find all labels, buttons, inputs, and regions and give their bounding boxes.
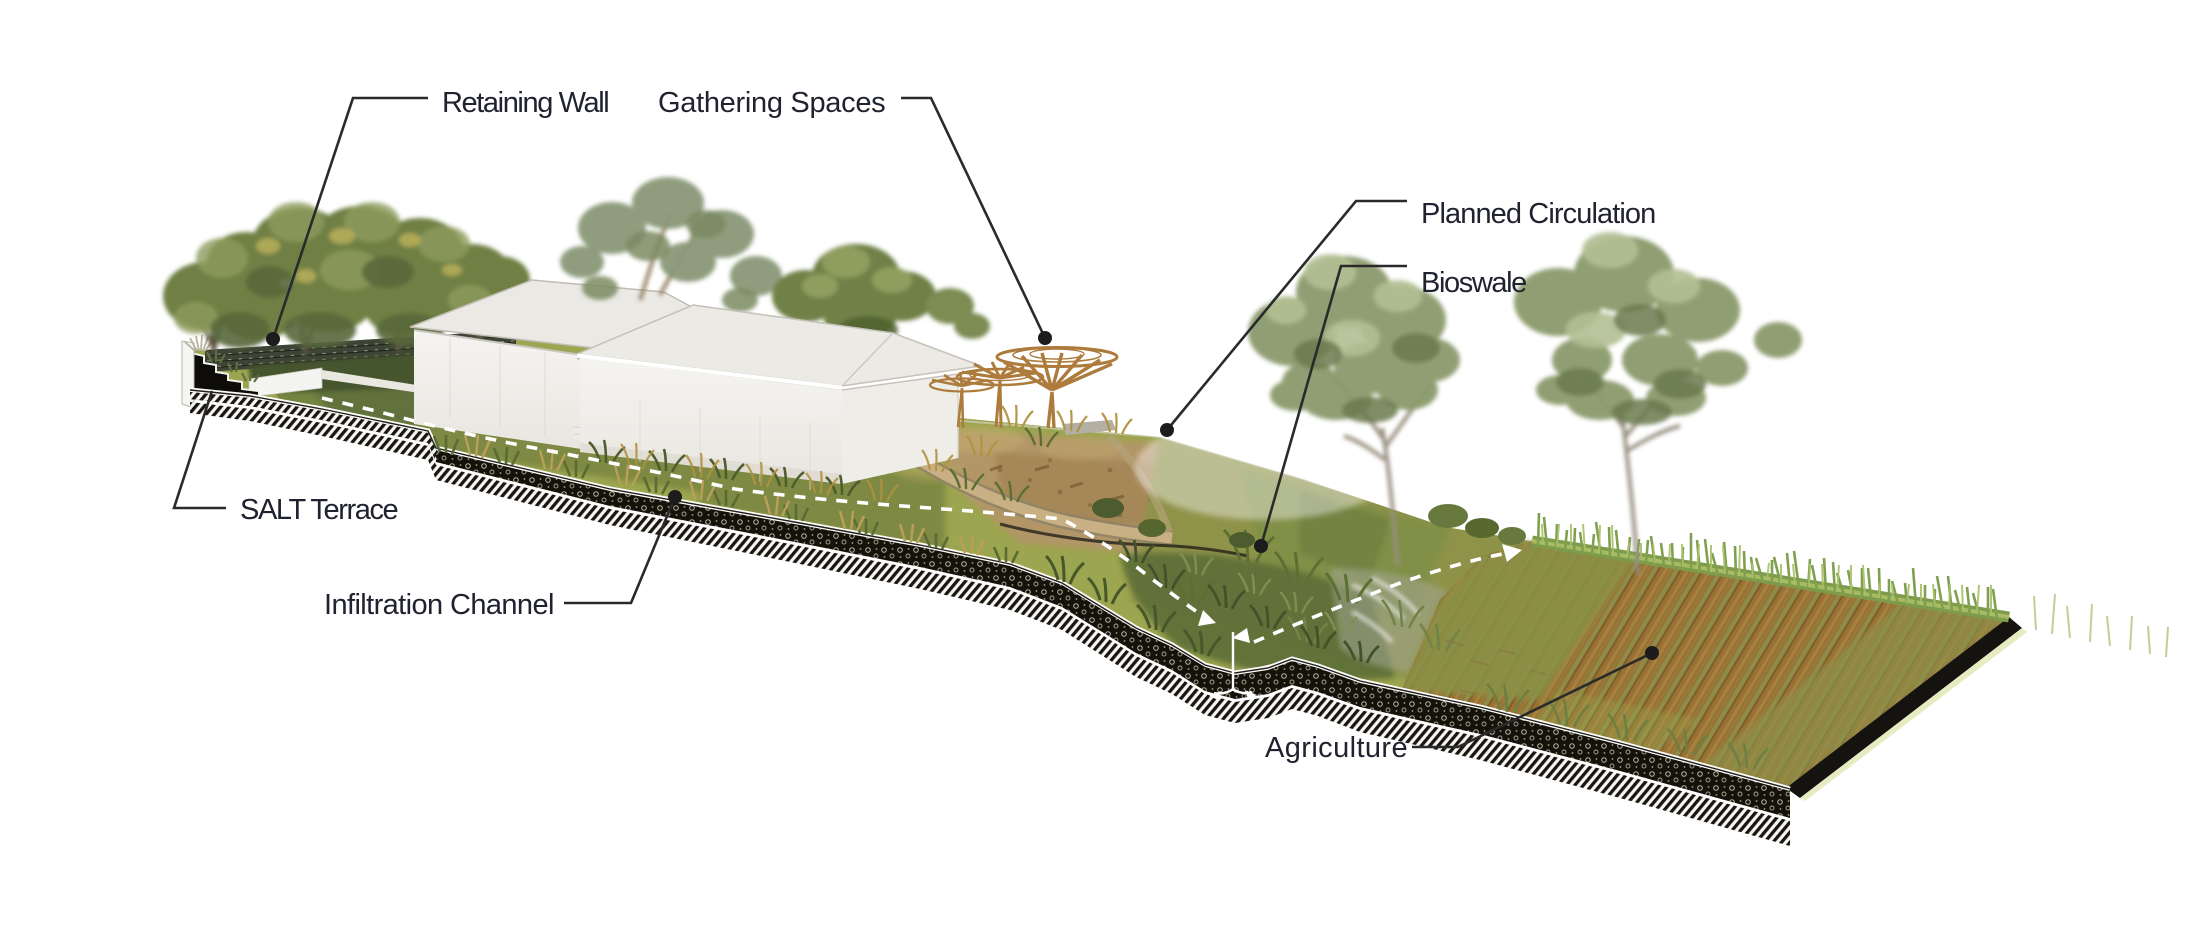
svg-text:Retaining Wall: Retaining Wall: [442, 87, 608, 119]
svg-text:SALT Terrace: SALT Terrace: [240, 494, 398, 526]
svg-text:Planned Circulation: Planned Circulation: [1421, 198, 1655, 230]
svg-text:Agriculture: Agriculture: [1265, 732, 1408, 764]
svg-text:Gathering Spaces: Gathering Spaces: [658, 87, 885, 119]
svg-text:Bioswale: Bioswale: [1421, 267, 1526, 299]
svg-text:Infiltration Channel: Infiltration Channel: [324, 589, 554, 621]
